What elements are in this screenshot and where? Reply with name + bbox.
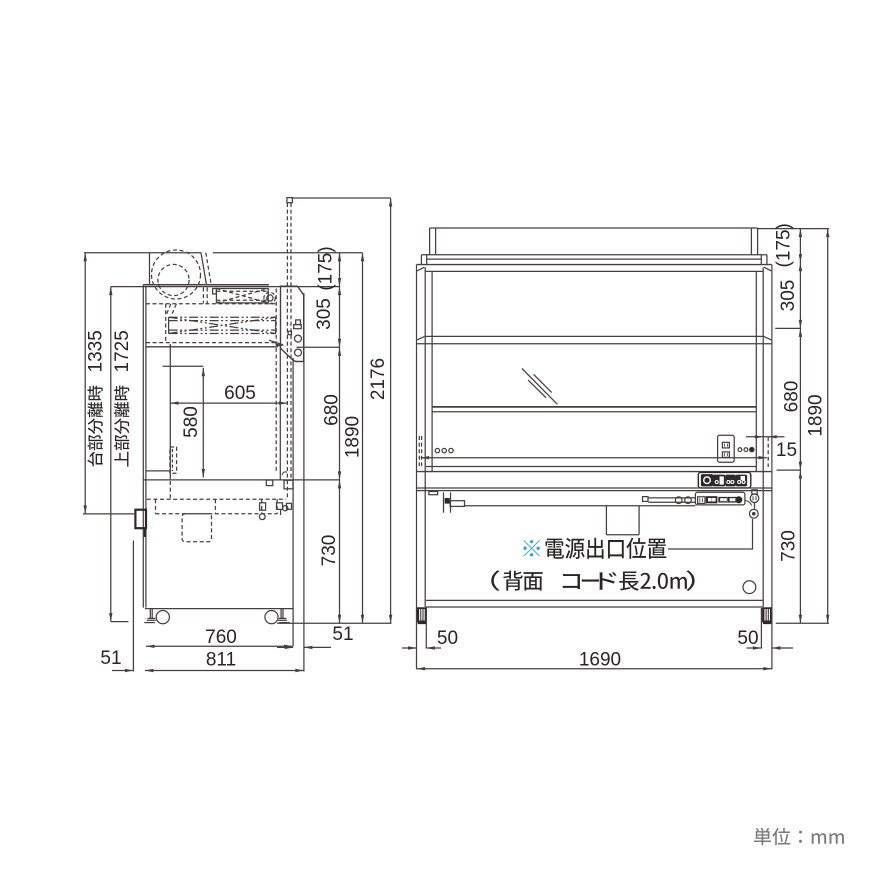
svg-text:2176: 2176 [368,358,389,400]
svg-text:680: 680 [782,381,803,413]
svg-text:15: 15 [776,440,797,461]
svg-text:1725: 1725 [112,330,133,372]
svg-text:580: 580 [181,406,202,438]
svg-text:51: 51 [332,624,353,645]
svg-text:51: 51 [100,648,121,669]
svg-text:(175): (175) [774,223,795,267]
svg-text:305: 305 [778,280,799,312]
svg-text:50: 50 [737,628,758,649]
svg-text:1690: 1690 [579,650,621,671]
svg-text:50: 50 [437,628,458,649]
svg-text:605: 605 [224,383,256,404]
svg-text:730: 730 [319,535,340,567]
svg-text:680: 680 [321,394,342,426]
svg-text:730: 730 [779,530,800,562]
svg-text:305: 305 [314,298,335,330]
svg-text:1335: 1335 [85,330,106,372]
svg-text:1890: 1890 [805,394,826,436]
svg-text:1890: 1890 [342,416,363,458]
svg-text:760: 760 [205,627,237,648]
svg-text:811: 811 [206,650,236,671]
